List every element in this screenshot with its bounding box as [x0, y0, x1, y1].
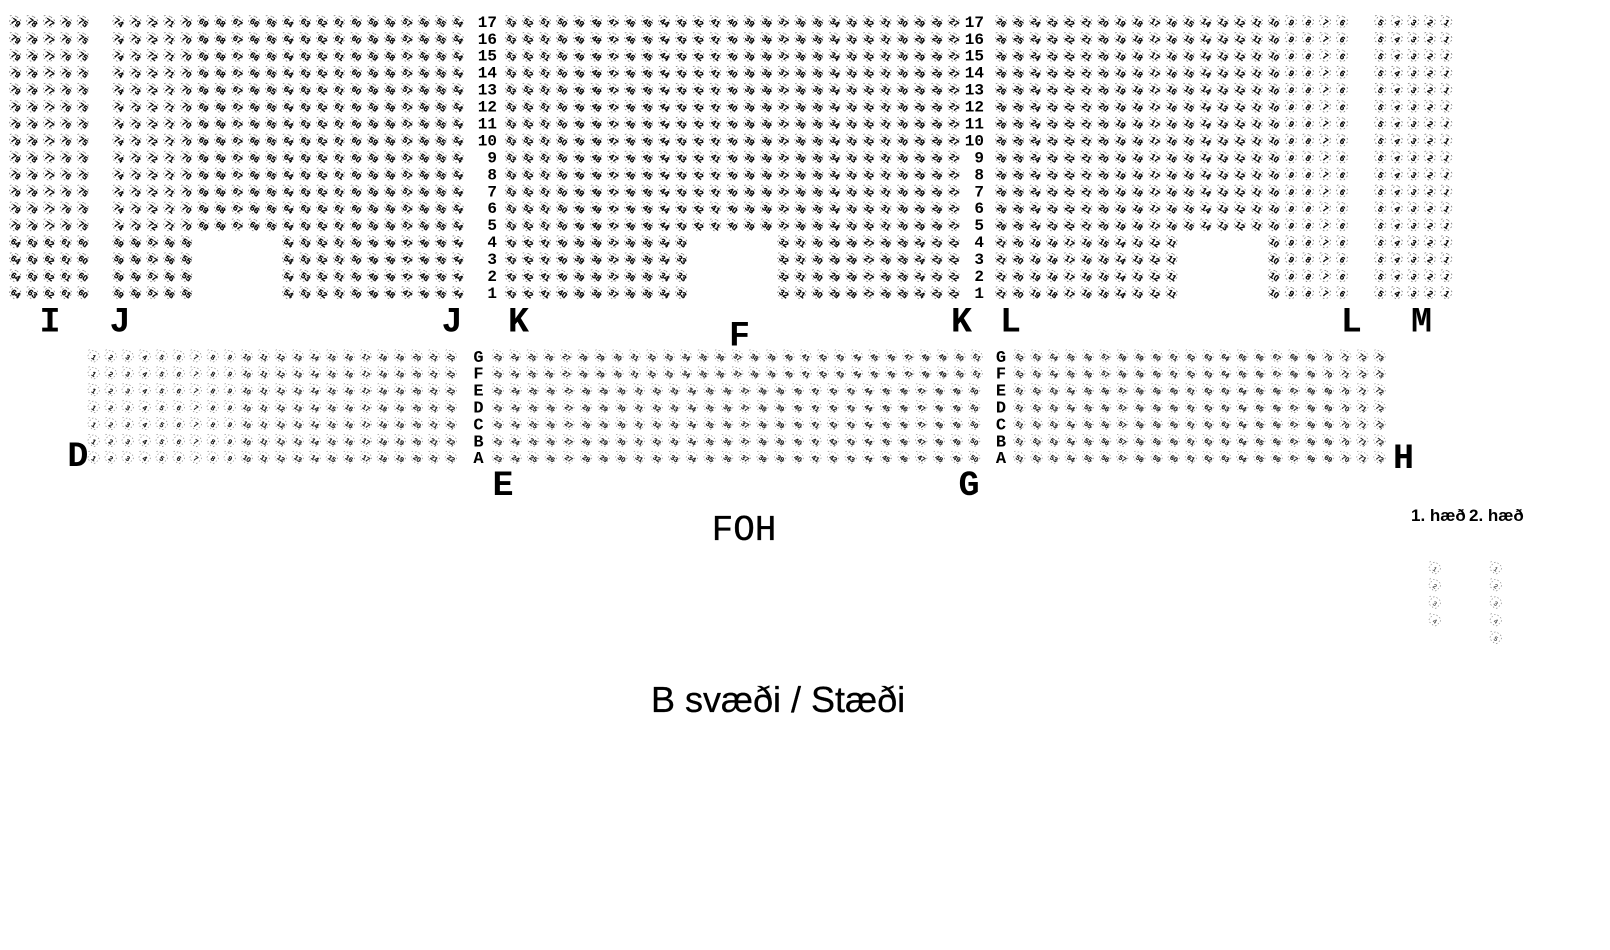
- svg-text:18: 18: [377, 387, 387, 397]
- svg-text:30: 30: [897, 16, 911, 30]
- svg-text:2: 2: [1426, 34, 1436, 45]
- svg-text:12: 12: [275, 353, 285, 363]
- svg-text:44: 44: [863, 387, 873, 397]
- svg-text:48: 48: [384, 287, 398, 301]
- svg-text:39: 39: [743, 185, 757, 199]
- svg-text:10: 10: [1268, 185, 1282, 199]
- svg-text:48: 48: [590, 50, 604, 64]
- svg-text:16: 16: [1080, 236, 1094, 250]
- svg-text:27: 27: [948, 134, 962, 148]
- svg-text:34: 34: [828, 134, 842, 148]
- svg-text:77: 77: [43, 168, 57, 182]
- svg-text:27: 27: [948, 202, 962, 216]
- svg-text:26: 26: [995, 16, 1009, 30]
- svg-text:11: 11: [1251, 202, 1264, 215]
- svg-text:65: 65: [265, 100, 279, 114]
- svg-text:58: 58: [384, 185, 398, 199]
- svg-text:12: 12: [1234, 33, 1248, 47]
- svg-text:71: 71: [163, 185, 177, 199]
- svg-text:21: 21: [1080, 16, 1094, 30]
- svg-text:19: 19: [394, 437, 404, 447]
- svg-text:32: 32: [646, 353, 656, 363]
- svg-text:65: 65: [265, 168, 279, 182]
- svg-text:50: 50: [556, 134, 570, 148]
- svg-text:18: 18: [1131, 151, 1145, 165]
- svg-text:26: 26: [544, 370, 554, 380]
- svg-text:10: 10: [1268, 50, 1282, 64]
- svg-text:70: 70: [180, 117, 194, 131]
- svg-text:64: 64: [9, 270, 23, 284]
- svg-text:57: 57: [1117, 437, 1127, 447]
- svg-text:15: 15: [326, 437, 336, 447]
- svg-text:38: 38: [590, 236, 604, 250]
- svg-text:20: 20: [411, 420, 421, 430]
- svg-text:39: 39: [743, 202, 757, 216]
- svg-text:43: 43: [675, 168, 689, 182]
- svg-text:22: 22: [1063, 185, 1077, 199]
- svg-text:49: 49: [951, 454, 961, 464]
- svg-text:45: 45: [641, 202, 655, 216]
- svg-text:9: 9: [1287, 34, 1297, 45]
- svg-text:25: 25: [897, 287, 911, 301]
- svg-text:75: 75: [77, 185, 91, 199]
- svg-text:78: 78: [26, 67, 40, 81]
- svg-text:11: 11: [1251, 134, 1264, 147]
- svg-text:20: 20: [1097, 219, 1111, 233]
- svg-text:51: 51: [539, 50, 553, 64]
- svg-text:51: 51: [539, 67, 553, 81]
- svg-text:49: 49: [573, 117, 587, 131]
- svg-text:57: 57: [1117, 387, 1127, 397]
- svg-text:40: 40: [726, 33, 740, 47]
- svg-text:72: 72: [146, 50, 160, 64]
- svg-text:42: 42: [692, 50, 706, 64]
- svg-text:21: 21: [1080, 117, 1094, 131]
- svg-text:1: 1: [1442, 169, 1452, 180]
- svg-text:66: 66: [248, 185, 262, 199]
- svg-text:1: 1: [90, 405, 97, 413]
- svg-text:46: 46: [624, 168, 638, 182]
- svg-text:23: 23: [1046, 16, 1060, 30]
- svg-text:25: 25: [528, 420, 538, 430]
- svg-text:15: 15: [1097, 253, 1111, 267]
- svg-text:10: 10: [241, 404, 251, 414]
- svg-text:63: 63: [299, 185, 313, 199]
- svg-text:59: 59: [367, 168, 381, 182]
- svg-text:15: 15: [326, 353, 336, 363]
- svg-text:37: 37: [739, 454, 749, 464]
- svg-text:61: 61: [333, 16, 347, 30]
- svg-text:52: 52: [1014, 353, 1024, 363]
- svg-text:71: 71: [163, 83, 177, 97]
- svg-text:13: 13: [1217, 100, 1231, 114]
- svg-text:44: 44: [658, 50, 672, 64]
- svg-text:17: 17: [965, 14, 984, 32]
- svg-text:56: 56: [1100, 420, 1110, 430]
- svg-text:27: 27: [948, 117, 962, 131]
- svg-text:51: 51: [1014, 420, 1024, 430]
- svg-text:39: 39: [743, 83, 757, 97]
- svg-text:21: 21: [1080, 50, 1094, 64]
- svg-text:25: 25: [1012, 219, 1026, 233]
- svg-text:14: 14: [309, 437, 319, 447]
- svg-text:61: 61: [1185, 420, 1195, 430]
- svg-text:73: 73: [129, 33, 143, 47]
- svg-text:41: 41: [709, 219, 723, 233]
- svg-text:50: 50: [556, 117, 570, 131]
- svg-text:40: 40: [792, 420, 802, 430]
- svg-text:61: 61: [1185, 404, 1195, 414]
- svg-text:14: 14: [1200, 16, 1214, 30]
- svg-text:16: 16: [343, 437, 353, 447]
- svg-text:G: G: [958, 466, 979, 506]
- svg-text:35: 35: [704, 420, 714, 430]
- svg-text:1: 1: [1442, 203, 1452, 214]
- svg-text:3: 3: [124, 405, 131, 413]
- svg-text:58: 58: [384, 168, 398, 182]
- svg-text:47: 47: [916, 404, 926, 414]
- svg-text:57: 57: [401, 134, 415, 148]
- svg-text:20: 20: [1097, 134, 1111, 148]
- svg-text:54: 54: [452, 83, 466, 97]
- svg-text:60: 60: [1168, 454, 1178, 464]
- svg-text:8: 8: [1304, 254, 1314, 265]
- svg-text:21: 21: [1080, 168, 1094, 182]
- svg-text:28: 28: [931, 33, 945, 47]
- svg-text:23: 23: [1046, 67, 1060, 81]
- svg-text:30: 30: [897, 83, 911, 97]
- svg-text:51: 51: [333, 270, 347, 284]
- svg-text:61: 61: [333, 219, 347, 233]
- svg-text:30: 30: [612, 370, 622, 380]
- svg-text:23: 23: [1046, 134, 1060, 148]
- svg-text:65: 65: [265, 202, 279, 216]
- svg-text:50: 50: [556, 219, 570, 233]
- svg-text:63: 63: [1220, 420, 1230, 430]
- svg-text:45: 45: [641, 83, 655, 97]
- svg-text:9: 9: [1287, 288, 1297, 299]
- svg-text:34: 34: [828, 117, 842, 131]
- svg-text:16: 16: [1166, 134, 1180, 148]
- svg-text:49: 49: [573, 151, 587, 165]
- svg-text:44: 44: [658, 100, 672, 114]
- svg-text:23: 23: [492, 437, 502, 447]
- svg-text:63: 63: [299, 33, 313, 47]
- svg-text:60: 60: [1151, 353, 1161, 363]
- svg-text:64: 64: [282, 134, 296, 148]
- svg-text:54: 54: [452, 185, 466, 199]
- svg-text:23: 23: [1046, 83, 1060, 97]
- svg-text:26: 26: [880, 270, 894, 284]
- svg-text:33: 33: [845, 33, 859, 47]
- svg-text:49: 49: [937, 370, 947, 380]
- svg-text:78: 78: [26, 50, 40, 64]
- svg-text:L: L: [1341, 303, 1362, 343]
- svg-text:4: 4: [1393, 17, 1403, 28]
- svg-text:18: 18: [377, 420, 387, 430]
- svg-text:45: 45: [641, 50, 655, 64]
- svg-text:44: 44: [658, 67, 672, 81]
- svg-text:71: 71: [1357, 420, 1367, 430]
- svg-text:3: 3: [124, 354, 131, 362]
- svg-text:5: 5: [158, 388, 165, 396]
- svg-text:55: 55: [435, 16, 449, 30]
- svg-text:17: 17: [1149, 151, 1163, 165]
- svg-text:51: 51: [1014, 454, 1024, 464]
- svg-text:52: 52: [316, 236, 330, 250]
- svg-text:29: 29: [914, 185, 928, 199]
- svg-text:9: 9: [1287, 203, 1297, 214]
- svg-text:68: 68: [1306, 420, 1316, 430]
- svg-text:26: 26: [995, 100, 1009, 114]
- svg-text:33: 33: [675, 270, 689, 284]
- svg-text:48: 48: [590, 67, 604, 81]
- svg-text:27: 27: [948, 33, 962, 47]
- svg-text:29: 29: [828, 270, 842, 284]
- svg-text:63: 63: [299, 151, 313, 165]
- svg-text:56: 56: [1100, 454, 1110, 464]
- svg-text:25: 25: [528, 404, 538, 414]
- svg-text:76: 76: [60, 219, 74, 233]
- svg-text:33: 33: [845, 16, 859, 30]
- svg-text:41: 41: [539, 253, 553, 267]
- svg-text:73: 73: [1374, 353, 1384, 363]
- svg-text:70: 70: [180, 134, 194, 148]
- svg-text:55: 55: [435, 83, 449, 97]
- svg-text:20: 20: [1012, 270, 1026, 284]
- svg-text:28: 28: [845, 287, 859, 301]
- svg-text:1: 1: [90, 371, 97, 379]
- svg-text:21: 21: [1080, 67, 1094, 81]
- svg-text:37: 37: [777, 185, 791, 199]
- svg-text:66: 66: [1271, 437, 1281, 447]
- svg-text:59: 59: [367, 185, 381, 199]
- svg-text:56: 56: [418, 50, 432, 64]
- svg-text:25: 25: [1012, 83, 1026, 97]
- svg-text:43: 43: [845, 454, 855, 464]
- svg-text:4: 4: [1393, 85, 1403, 96]
- svg-text:54: 54: [1048, 370, 1058, 380]
- svg-text:66: 66: [248, 168, 262, 182]
- svg-text:41: 41: [709, 202, 723, 216]
- svg-text:31: 31: [634, 454, 644, 464]
- svg-text:72: 72: [146, 33, 160, 47]
- svg-text:69: 69: [1306, 370, 1316, 380]
- svg-text:59: 59: [367, 67, 381, 81]
- svg-text:21: 21: [1080, 202, 1094, 216]
- svg-text:12: 12: [1149, 270, 1163, 284]
- svg-text:22: 22: [1063, 168, 1077, 182]
- svg-text:32: 32: [862, 117, 876, 131]
- svg-text:56: 56: [418, 219, 432, 233]
- svg-text:35: 35: [811, 117, 825, 131]
- svg-text:77: 77: [43, 134, 57, 148]
- svg-text:44: 44: [658, 185, 672, 199]
- svg-text:57: 57: [146, 287, 160, 301]
- svg-text:6: 6: [1338, 237, 1348, 248]
- svg-text:40: 40: [556, 287, 570, 301]
- svg-text:25: 25: [528, 454, 538, 464]
- svg-text:38: 38: [760, 134, 774, 148]
- svg-text:53: 53: [1048, 437, 1058, 447]
- svg-text:18: 18: [1131, 134, 1145, 148]
- svg-text:32: 32: [862, 151, 876, 165]
- svg-text:18: 18: [1046, 236, 1060, 250]
- svg-text:78: 78: [26, 151, 40, 165]
- svg-text:21: 21: [428, 404, 438, 414]
- svg-text:37: 37: [777, 50, 791, 64]
- svg-text:20: 20: [1097, 33, 1111, 47]
- svg-text:16: 16: [343, 420, 353, 430]
- svg-text:66: 66: [1254, 370, 1264, 380]
- svg-text:30: 30: [616, 404, 626, 414]
- svg-text:67: 67: [231, 134, 245, 148]
- svg-text:31: 31: [634, 387, 644, 397]
- svg-text:19: 19: [394, 370, 404, 380]
- svg-text:1: 1: [1442, 153, 1452, 164]
- svg-text:70: 70: [180, 50, 194, 64]
- svg-text:51: 51: [333, 253, 347, 267]
- svg-text:29: 29: [828, 236, 842, 250]
- svg-text:43: 43: [845, 420, 855, 430]
- svg-text:45: 45: [641, 16, 655, 30]
- svg-text:25: 25: [897, 253, 911, 267]
- svg-text:43: 43: [505, 236, 519, 250]
- svg-text:14: 14: [309, 420, 319, 430]
- svg-text:41: 41: [810, 454, 820, 464]
- svg-text:43: 43: [675, 185, 689, 199]
- svg-text:39: 39: [766, 370, 776, 380]
- svg-text:26: 26: [545, 387, 555, 397]
- svg-text:63: 63: [299, 16, 313, 30]
- svg-text:40: 40: [792, 454, 802, 464]
- svg-text:52: 52: [1014, 370, 1024, 380]
- svg-text:13: 13: [965, 82, 984, 100]
- svg-text:5: 5: [1376, 271, 1386, 282]
- svg-text:53: 53: [505, 67, 519, 81]
- svg-text:44: 44: [863, 454, 873, 464]
- svg-text:59: 59: [367, 202, 381, 216]
- svg-text:57: 57: [401, 168, 415, 182]
- svg-text:18: 18: [1131, 219, 1145, 233]
- svg-text:17: 17: [360, 353, 370, 363]
- svg-text:18: 18: [1046, 287, 1060, 301]
- svg-text:54: 54: [282, 236, 296, 250]
- svg-text:5: 5: [1376, 119, 1386, 130]
- svg-text:17: 17: [1149, 219, 1163, 233]
- svg-text:46: 46: [624, 67, 638, 81]
- svg-text:36: 36: [722, 454, 732, 464]
- svg-text:61: 61: [333, 168, 347, 182]
- svg-text:62: 62: [1203, 454, 1213, 464]
- svg-text:67: 67: [231, 16, 245, 30]
- svg-text:71: 71: [163, 33, 177, 47]
- svg-text:40: 40: [792, 404, 802, 414]
- svg-text:47: 47: [607, 134, 621, 148]
- svg-text:59: 59: [1151, 404, 1161, 414]
- svg-text:59: 59: [1151, 387, 1161, 397]
- svg-text:63: 63: [299, 219, 313, 233]
- svg-text:69: 69: [1323, 387, 1333, 397]
- svg-text:42: 42: [692, 219, 706, 233]
- svg-text:7: 7: [1321, 85, 1331, 96]
- svg-text:22: 22: [445, 420, 455, 430]
- svg-text:31: 31: [880, 67, 894, 81]
- svg-text:68: 68: [214, 219, 228, 233]
- svg-text:36: 36: [722, 437, 732, 447]
- svg-text:54: 54: [282, 270, 296, 284]
- svg-text:64: 64: [282, 100, 296, 114]
- svg-text:2: 2: [1426, 237, 1436, 248]
- svg-text:24: 24: [1029, 67, 1043, 81]
- svg-text:31: 31: [880, 83, 894, 97]
- svg-text:15: 15: [1183, 134, 1197, 148]
- svg-text:76: 76: [60, 50, 74, 64]
- svg-text:56: 56: [163, 236, 177, 250]
- svg-text:19: 19: [1029, 270, 1043, 284]
- svg-text:35: 35: [811, 168, 825, 182]
- svg-text:32: 32: [862, 50, 876, 64]
- svg-text:47: 47: [607, 83, 621, 97]
- svg-text:33: 33: [845, 83, 859, 97]
- svg-text:36: 36: [794, 33, 808, 47]
- svg-text:54: 54: [452, 134, 466, 148]
- svg-text:66: 66: [248, 33, 262, 47]
- svg-text:40: 40: [726, 16, 740, 30]
- svg-text:34: 34: [658, 253, 672, 267]
- svg-text:30: 30: [897, 117, 911, 131]
- svg-text:49: 49: [951, 420, 961, 430]
- svg-text:28: 28: [581, 387, 591, 397]
- svg-text:30: 30: [811, 287, 825, 301]
- svg-text:26: 26: [995, 151, 1009, 165]
- svg-text:9: 9: [1287, 271, 1297, 282]
- svg-text:39: 39: [775, 420, 785, 430]
- svg-text:30: 30: [897, 50, 911, 64]
- svg-text:61: 61: [60, 270, 74, 284]
- svg-text:50: 50: [969, 404, 979, 414]
- svg-text:16: 16: [1166, 16, 1180, 30]
- svg-text:24: 24: [1029, 83, 1043, 97]
- svg-text:25: 25: [528, 387, 538, 397]
- svg-text:65: 65: [265, 117, 279, 131]
- svg-text:69: 69: [197, 168, 211, 182]
- svg-text:40: 40: [726, 134, 740, 148]
- svg-text:60: 60: [77, 287, 91, 301]
- svg-text:23: 23: [1046, 185, 1060, 199]
- svg-text:72: 72: [146, 16, 160, 30]
- svg-text:15: 15: [326, 370, 336, 380]
- svg-text:2: 2: [1426, 271, 1436, 282]
- svg-text:26: 26: [544, 353, 554, 363]
- svg-text:65: 65: [265, 50, 279, 64]
- svg-text:53: 53: [505, 33, 519, 47]
- svg-text:39: 39: [775, 404, 785, 414]
- svg-text:17: 17: [1063, 236, 1077, 250]
- svg-text:53: 53: [1048, 420, 1058, 430]
- svg-text:47: 47: [916, 454, 926, 464]
- svg-text:14: 14: [1200, 168, 1214, 182]
- svg-text:6: 6: [1338, 68, 1348, 79]
- svg-text:18: 18: [377, 370, 387, 380]
- svg-text:33: 33: [663, 353, 673, 363]
- svg-text:70: 70: [1340, 437, 1350, 447]
- svg-text:68: 68: [214, 50, 228, 64]
- svg-text:14: 14: [1200, 50, 1214, 64]
- svg-text:5: 5: [1376, 203, 1386, 214]
- svg-text:39: 39: [743, 33, 757, 47]
- svg-text:65: 65: [1254, 437, 1264, 447]
